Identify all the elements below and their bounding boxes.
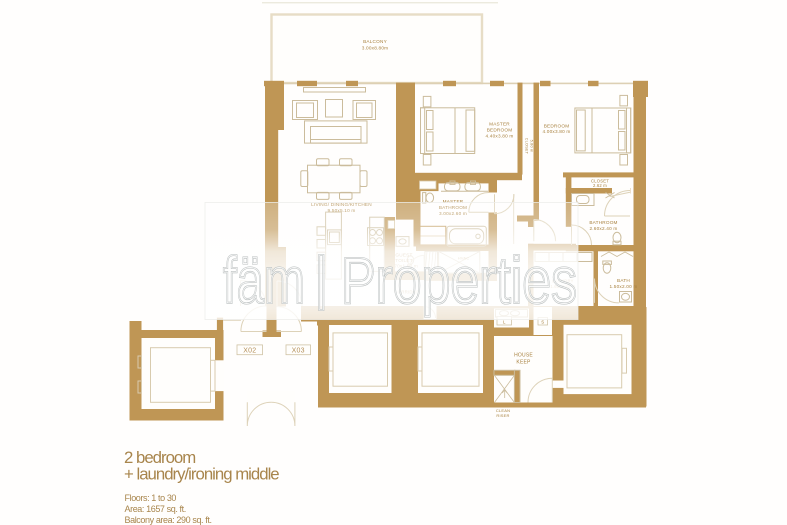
svg-text:MASTER: MASTER [489,122,510,127]
svg-text:BEDROOM: BEDROOM [487,128,513,133]
svg-text:CLOSET: CLOSET [525,138,529,155]
svg-text:3.00x8.80m: 3.00x8.80m [362,46,389,51]
svg-text:fäm: fäm [223,243,305,317]
svg-text:X03: X03 [292,347,305,354]
svg-text:Balcony area: 290 sq. ft.: Balcony area: 290 sq. ft. [125,515,212,525]
svg-text:Properties: Properties [341,243,577,317]
svg-text:L: L [503,320,506,325]
svg-text:BATHROOM: BATHROOM [589,220,617,225]
svg-text:S: S [541,320,544,325]
svg-text:BEDROOM: BEDROOM [544,124,570,129]
svg-text:4.40x3.80 m: 4.40x3.80 m [486,134,514,139]
svg-text:HOUSE: HOUSE [514,353,533,359]
svg-text:1.50x2.00 m: 1.50x2.00 m [610,284,638,289]
svg-text:5.80 m: 5.80 m [530,140,534,153]
svg-text:X02: X02 [243,347,256,354]
svg-text:2.60x2.40 m: 2.60x2.40 m [590,226,618,231]
svg-text:Area: 1657 sq. ft.: Area: 1657 sq. ft. [125,504,186,514]
svg-text:RISER: RISER [496,413,509,418]
svg-text:Floors: 1 to 30: Floors: 1 to 30 [125,493,177,503]
svg-text:BATH: BATH [617,278,630,283]
svg-text:4.00x3.80 m: 4.00x3.80 m [543,129,571,134]
svg-text:BALCONY: BALCONY [363,39,387,44]
svg-text:2.62 m: 2.62 m [593,183,607,188]
svg-text:KEEP: KEEP [516,360,531,366]
svg-text:+ laundry/ironing middle: + laundry/ironing middle [124,465,279,484]
